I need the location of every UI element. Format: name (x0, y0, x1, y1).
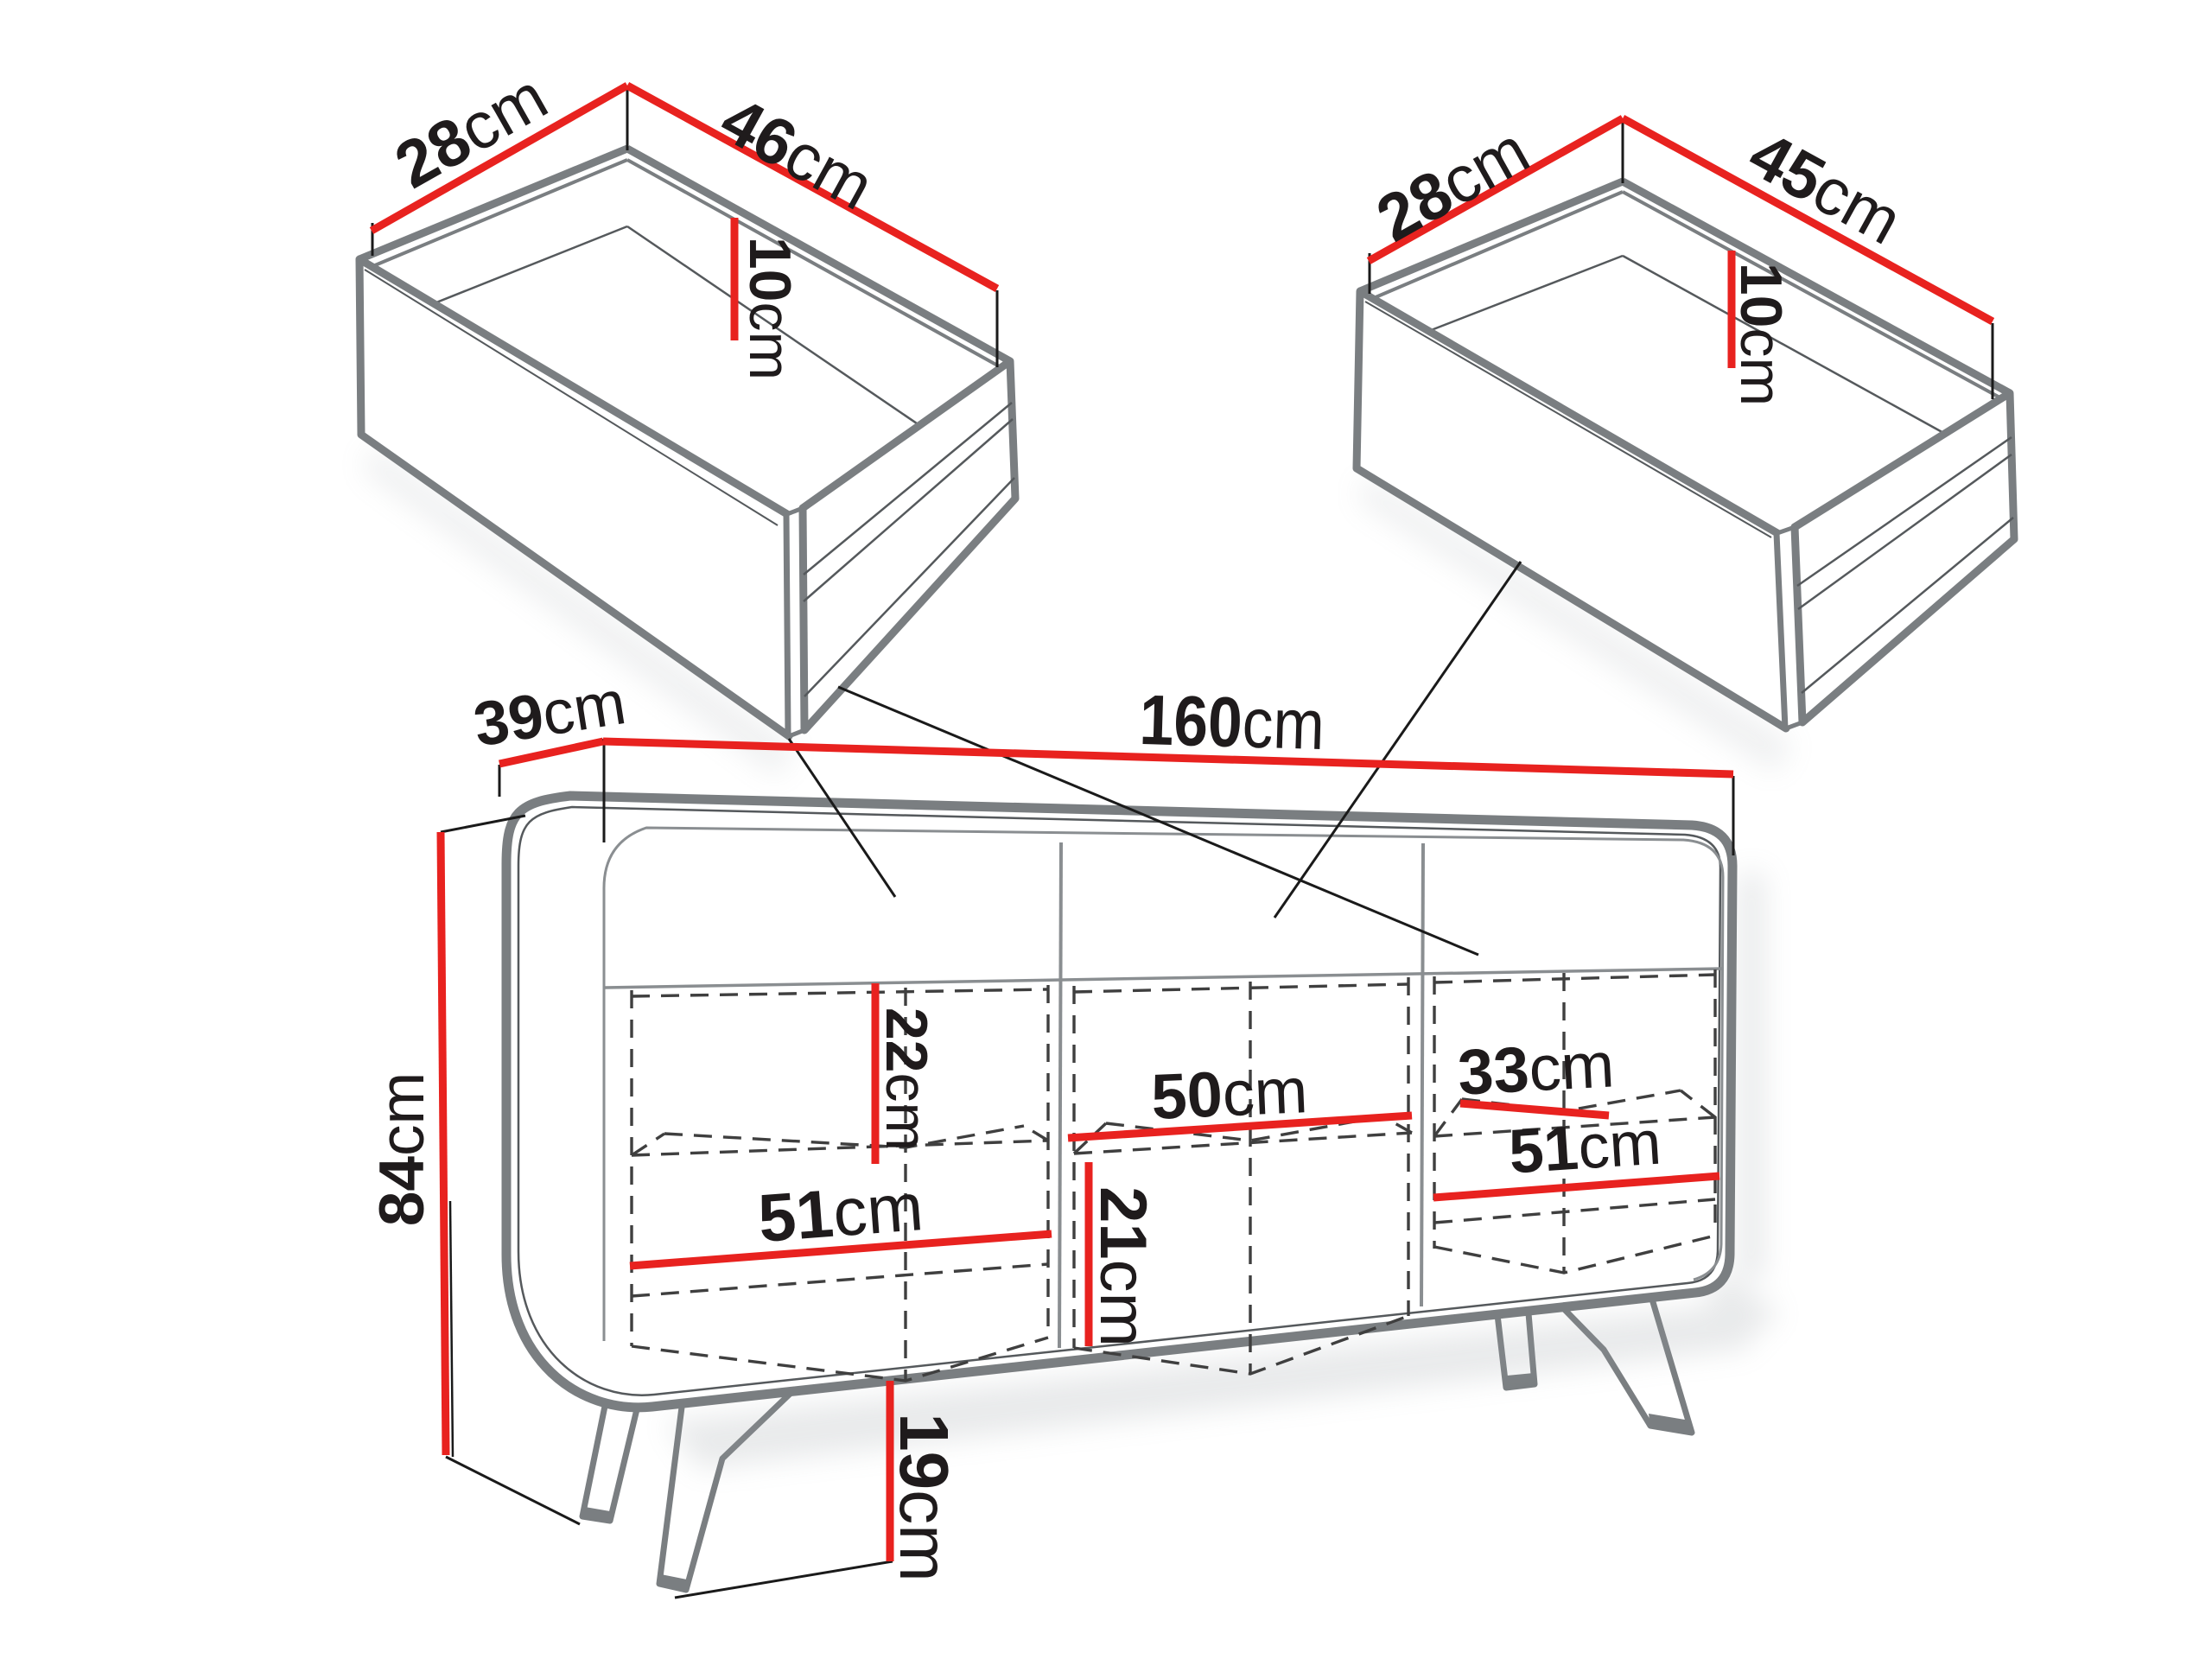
svg-text:10cm: 10cm (737, 237, 803, 380)
svg-text:33cm: 33cm (1456, 1028, 1616, 1108)
svg-text:22cm: 22cm (874, 1007, 939, 1151)
svg-text:21cm: 21cm (1086, 1186, 1160, 1347)
svg-text:51cm: 51cm (1507, 1108, 1663, 1186)
svg-text:51cm: 51cm (756, 1168, 926, 1256)
svg-text:160cm: 160cm (1138, 680, 1325, 765)
svg-text:19cm: 19cm (886, 1413, 963, 1582)
svg-text:50cm: 50cm (1150, 1054, 1309, 1133)
svg-text:10cm: 10cm (1728, 263, 1794, 406)
svg-text:84cm: 84cm (367, 1072, 437, 1227)
